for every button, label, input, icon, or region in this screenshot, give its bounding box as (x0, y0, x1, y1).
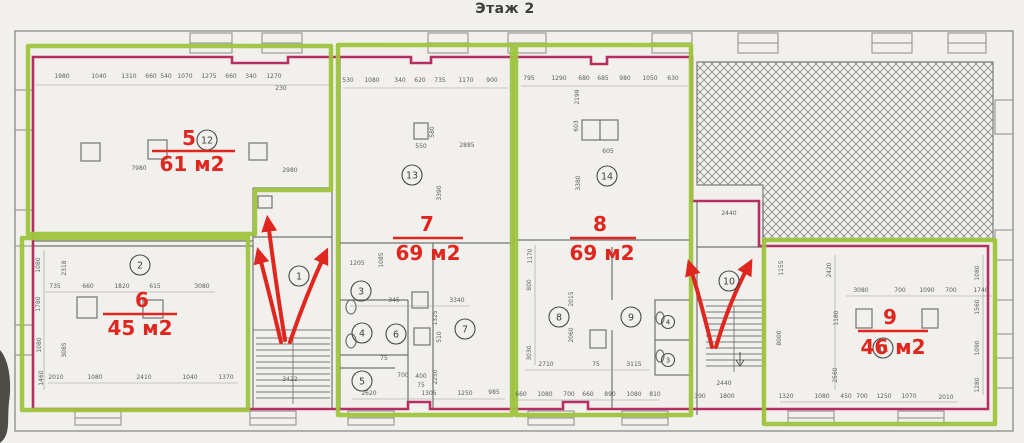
room-number: 12 (201, 135, 213, 146)
room-number: 13 (406, 170, 418, 181)
floor-plan-drawing: 1980104013106605401070127566034012702307… (0, 0, 1024, 443)
dimension-label: 1280 (974, 377, 981, 392)
dimension-label: 2060 (568, 327, 575, 342)
dimension-label: 680 (578, 75, 590, 82)
room-number: 4 (359, 328, 365, 339)
room-number: 14 (601, 171, 613, 182)
dimension-label: 1460 (38, 370, 45, 385)
dimension-label: 1560 (974, 299, 981, 314)
dimension-label: 630 (667, 75, 679, 82)
dimension-label: 2980 (282, 167, 297, 174)
dimension-label: 615 (149, 283, 161, 290)
dimension-label: 1090 (919, 287, 934, 294)
room-number: 2 (137, 260, 143, 271)
dimension-label: 700 (945, 287, 957, 294)
dimension-label: 800 (526, 279, 533, 291)
dimension-label: 3390 (436, 185, 443, 200)
dimension-label: 3080 (853, 287, 868, 294)
dimension-label: 1170 (527, 248, 534, 263)
dimension-label: 2318 (61, 260, 68, 275)
hatched-region (697, 62, 993, 240)
dimension-label: 1080 (537, 391, 552, 398)
dimension-label: 1080 (626, 391, 641, 398)
dimension-label: 1180 (833, 310, 840, 325)
dimension-label: 2560 (832, 367, 839, 382)
dimension-label: 550 (415, 143, 427, 150)
dimension-label: 700 (397, 372, 409, 379)
dimension-label: 340 (394, 77, 406, 84)
dimension-label: 75 (592, 361, 600, 368)
dimension-label: 400 (415, 373, 427, 380)
dimension-label: 605 (602, 148, 614, 155)
dimension-label: 2420 (826, 262, 833, 277)
dimension-label: 603 (573, 120, 580, 132)
dimension-label: 530 (342, 77, 354, 84)
dimension-label: 450 (840, 393, 852, 400)
dimension-label: 2010 (938, 394, 953, 401)
dimension-label: 685 (597, 75, 609, 82)
room-number: 3 (358, 286, 364, 297)
dimension-label: 660 (515, 391, 527, 398)
dimension-label: 810 (649, 391, 661, 398)
dimension-label: 1325 (432, 310, 439, 325)
room-number: 9 (628, 312, 634, 323)
dimension-label: 700 (894, 287, 906, 294)
dimension-label: 2885 (459, 142, 474, 149)
dimension-label: 1780 (35, 296, 42, 311)
dimension-label: 890 (604, 391, 616, 398)
dimension-label: 1080 (36, 337, 43, 352)
dimension-label: 3340 (449, 297, 464, 304)
dimension-label: 660 (582, 391, 594, 398)
dimension-label: 1270 (266, 73, 281, 80)
dimension-label: 510 (436, 331, 443, 343)
dimension-label: 1740 (973, 287, 988, 294)
dimension-label: 3380 (575, 175, 582, 190)
dimension-label: 2710 (538, 361, 553, 368)
room-number: 6 (393, 329, 399, 340)
dimension-label: 3030 (526, 345, 533, 360)
room-number: 3 (666, 356, 670, 364)
dimension-label: 1205 (349, 260, 364, 267)
dimension-label: 2410 (136, 374, 151, 381)
dimension-label: 3422 (282, 376, 297, 383)
dimension-label: 1090 (974, 340, 981, 355)
dimension-label: 1040 (91, 73, 106, 80)
dimension-label: 540 (160, 73, 172, 80)
dimension-label: 2199 (574, 89, 581, 104)
dimension-label: 1305 (421, 390, 436, 397)
dimension-label: 1080 (87, 374, 102, 381)
dimension-label: 660 (82, 283, 94, 290)
dimension-label: 1170 (458, 77, 473, 84)
dimension-label: 1080 (974, 265, 981, 280)
room-number: 1 (296, 271, 302, 282)
dimension-label: 700 (563, 391, 575, 398)
room-number: 8 (556, 312, 562, 323)
dimension-label: 735 (434, 77, 446, 84)
dimension-label: 620 (414, 77, 426, 84)
room-number: 5 (359, 376, 365, 387)
room-number: 4 (666, 318, 671, 326)
dimension-label: 1820 (114, 283, 129, 290)
apartment-number: 5 (182, 126, 196, 150)
dimension-label: 660 (225, 73, 237, 80)
dimension-label: 1070 (901, 393, 916, 400)
dimension-label: 75 (380, 355, 388, 362)
dimension-label: 1250 (876, 393, 891, 400)
apartment-number: 6 (135, 288, 149, 312)
apartment-area: 46 м2 (860, 335, 925, 359)
scan-smudge (0, 350, 10, 443)
dimension-label: 900 (486, 77, 498, 84)
dimension-label: 1320 (778, 393, 793, 400)
dimension-label: 1080 (814, 393, 829, 400)
dimension-label: 340 (245, 73, 257, 80)
apartment-area: 61 м2 (159, 152, 224, 176)
dimension-label: 1080 (35, 257, 42, 272)
dimension-label: 7980 (131, 165, 146, 172)
dimension-label: 700 (856, 393, 868, 400)
dimension-label: 1040 (182, 374, 197, 381)
floor-plan-page: Этаж 2 (0, 0, 1024, 443)
dimension-label: 2440 (721, 210, 736, 217)
right-stairs-arrow-left (690, 266, 712, 347)
dimension-label: 1250 (457, 390, 472, 397)
dimension-label: 230 (275, 85, 287, 92)
dimension-label: 985 (488, 389, 500, 396)
dimension-label: 735 (49, 283, 61, 290)
apartment-number: 7 (420, 212, 434, 236)
dimension-label: 1085 (378, 252, 385, 267)
dimension-label: 390 (694, 393, 706, 400)
dimension-label: 1080 (364, 77, 379, 84)
dimension-label: 3080 (194, 283, 209, 290)
apartment-area: 69 м2 (395, 241, 460, 265)
dimension-label: 1980 (54, 73, 69, 80)
apartment-area: 69 м2 (569, 241, 634, 265)
dimension-label: 1275 (201, 73, 216, 80)
dimension-label: 2250 (432, 369, 439, 384)
dimension-label: 2010 (48, 374, 63, 381)
dimension-label: 8000 (776, 330, 783, 345)
dimension-label: 1290 (551, 75, 566, 82)
left-staircase (253, 330, 332, 404)
apartment-area: 45 м2 (107, 316, 172, 340)
dimension-label: 1310 (121, 73, 136, 80)
dimension-label: 580 (429, 126, 436, 138)
dimension-label: 2015 (568, 291, 575, 306)
dimension-label: 795 (523, 75, 535, 82)
dimension-label: 1800 (719, 393, 734, 400)
dimension-label: 980 (619, 75, 631, 82)
dimension-label: 1070 (177, 73, 192, 80)
apartment-number: 9 (883, 305, 897, 329)
dimension-label: 3115 (626, 361, 641, 368)
room-number: 7 (462, 324, 468, 335)
room-number: 10 (723, 276, 735, 287)
apartment-number: 8 (593, 212, 607, 236)
dimension-label: 1155 (778, 260, 785, 275)
dimension-label: 2440 (716, 380, 731, 387)
dimension-label: 1370 (218, 374, 233, 381)
dimension-label: 1050 (642, 75, 657, 82)
dimension-label: 3085 (61, 342, 68, 357)
dimension-label: 345 (388, 297, 400, 304)
dimension-label: 75 (417, 382, 425, 389)
dimension-label: 660 (145, 73, 157, 80)
